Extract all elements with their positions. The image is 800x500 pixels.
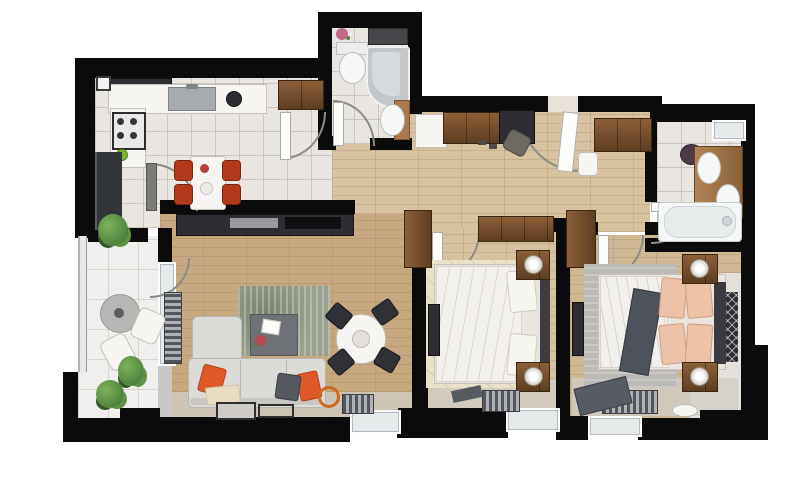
bedroom2-wall-art: [726, 292, 738, 362]
hall-bench: [578, 152, 598, 176]
wall-left: [75, 58, 95, 238]
coffee-table-flowers: [255, 335, 266, 346]
dining-table-flowers: [200, 164, 209, 173]
dining-chair-3: [222, 160, 241, 181]
bathroom1-shelf: [368, 28, 408, 45]
dining-table-plate: [200, 182, 213, 195]
kitchen-pot: [226, 91, 242, 107]
wall-living-left-upper: [158, 228, 172, 262]
bathroom2-sink: [697, 152, 721, 184]
hall-wardrobe: [594, 118, 652, 152]
living-room-radiator: [342, 394, 374, 414]
wall-living-bottom: [158, 417, 350, 442]
bedroom2-pillow-4: [685, 323, 714, 365]
balcony-plant-2: [118, 356, 144, 386]
kitchen-cooktop: [112, 112, 146, 150]
bathroom1-sink: [380, 104, 405, 136]
tv-screen: [284, 216, 342, 230]
balcony-table-base: [114, 308, 124, 318]
wall-bedroom1-bottom: [398, 408, 508, 438]
nook-wardrobe: [278, 80, 324, 110]
bedroom2-window: [588, 416, 642, 437]
tv-console-shelf: [230, 218, 278, 228]
bedroom2-tv: [572, 302, 584, 356]
round-table-plate: [352, 330, 370, 348]
wall-bedroom2-bottom: [638, 418, 742, 440]
wall-balcony-step: [120, 408, 160, 442]
hall-tall-wardrobe: [566, 210, 596, 268]
balcony-wall-radiator: [164, 292, 182, 364]
entry-threshold: [548, 96, 578, 112]
wall-bathroom1-top: [318, 12, 422, 28]
kitchen-faucet: [186, 84, 198, 89]
floor-plan: [0, 0, 800, 500]
bedroom2-pillow-3: [658, 323, 688, 365]
balcony-plant-3: [96, 380, 124, 408]
bedroom1-radiator: [482, 390, 520, 412]
bedroom2-lamp-bottom: [690, 367, 709, 386]
bathroom2-window: [712, 120, 746, 141]
wall-living-left-lower: [158, 362, 172, 417]
balcony-plant-1: [98, 214, 128, 246]
bathroom1-tub-inner: [372, 52, 400, 96]
bathroom2-tub-drain: [722, 216, 732, 226]
wall-kitchen-top: [75, 58, 320, 78]
floor-mat-1: [216, 402, 256, 420]
thermostat: [96, 76, 111, 91]
dining-chair-4: [222, 184, 241, 205]
bedroom1-lamp-bottom: [524, 367, 543, 386]
cooktop-burners: [117, 118, 124, 125]
toilet1-bowl: [339, 52, 366, 84]
hall-sideboard: [443, 112, 501, 144]
kitchen-sink: [168, 87, 216, 111]
bedroom1-tv: [428, 304, 440, 356]
bedroom1-wardrobe-left: [404, 210, 432, 268]
balcony-railing: [78, 236, 87, 372]
sofa-seat-divider: [240, 360, 241, 400]
bedroom2-lamp-top: [690, 259, 709, 278]
bathroom1-door: [333, 102, 344, 146]
bedroom1-wardrobe-top: [478, 216, 554, 242]
bathroom1-plant: [336, 28, 348, 40]
dining-chair-2: [174, 184, 193, 205]
bedroom1-lamp-top: [524, 255, 543, 274]
sofa-pillow-gray: [274, 372, 301, 401]
wall-bedroom-divider-stub: [556, 416, 588, 440]
dining-door: [146, 163, 157, 211]
kitchen-lobby-door: [280, 112, 291, 160]
dining-chair-1: [174, 160, 193, 181]
orange-basket: [318, 386, 340, 408]
hall-shoes: [478, 140, 486, 145]
floor-mat-2: [258, 404, 294, 418]
bedroom2-pet-dish: [672, 404, 698, 417]
bedroom2-headboard: [714, 282, 726, 364]
coffee-table-book: [261, 319, 281, 336]
